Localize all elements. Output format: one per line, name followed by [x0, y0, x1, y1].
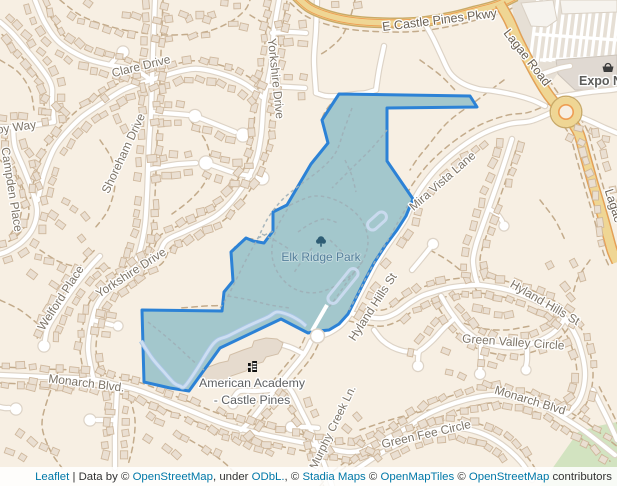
svg-text:- Castle Pines: - Castle Pines — [214, 393, 291, 407]
svg-text:Leaflet | Data by © OpenStreet: Leaflet | Data by © OpenStreetMap, under… — [35, 471, 612, 483]
svg-text:American Academy: American Academy — [199, 376, 306, 390]
svg-text:Elk Ridge Park: Elk Ridge Park — [281, 250, 361, 264]
svg-text:Expo N: Expo N — [579, 74, 617, 88]
